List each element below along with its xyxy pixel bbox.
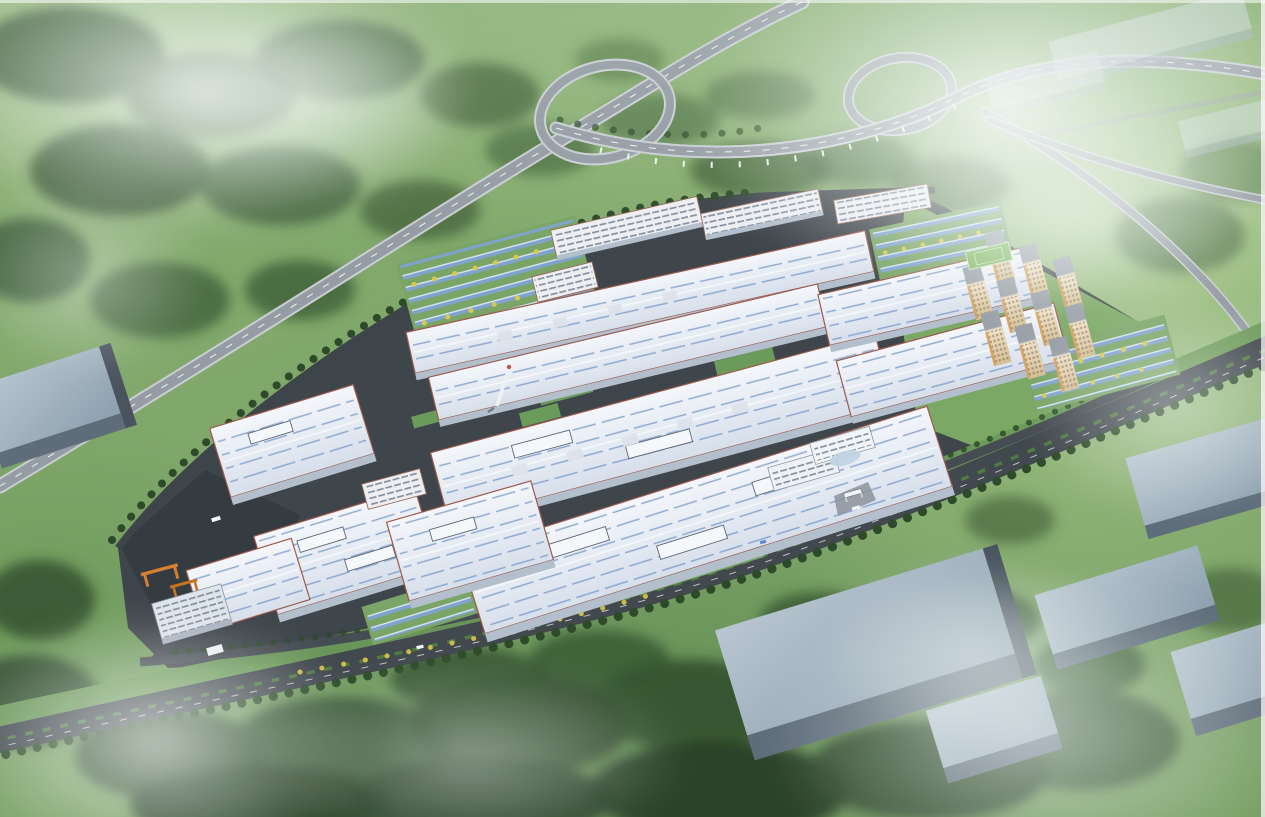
rendering-canvas: Industrial park campus — aerial bird's-e… (0, 0, 1265, 817)
scan-edge-right (1261, 0, 1265, 817)
massing-block-faint (985, 50, 1107, 117)
massing-block (1125, 414, 1265, 539)
aerial-rendering: Industrial park campus — aerial bird's-e… (0, 0, 1265, 817)
scan-edge-top (0, 0, 1265, 3)
massing-block (1170, 617, 1265, 736)
